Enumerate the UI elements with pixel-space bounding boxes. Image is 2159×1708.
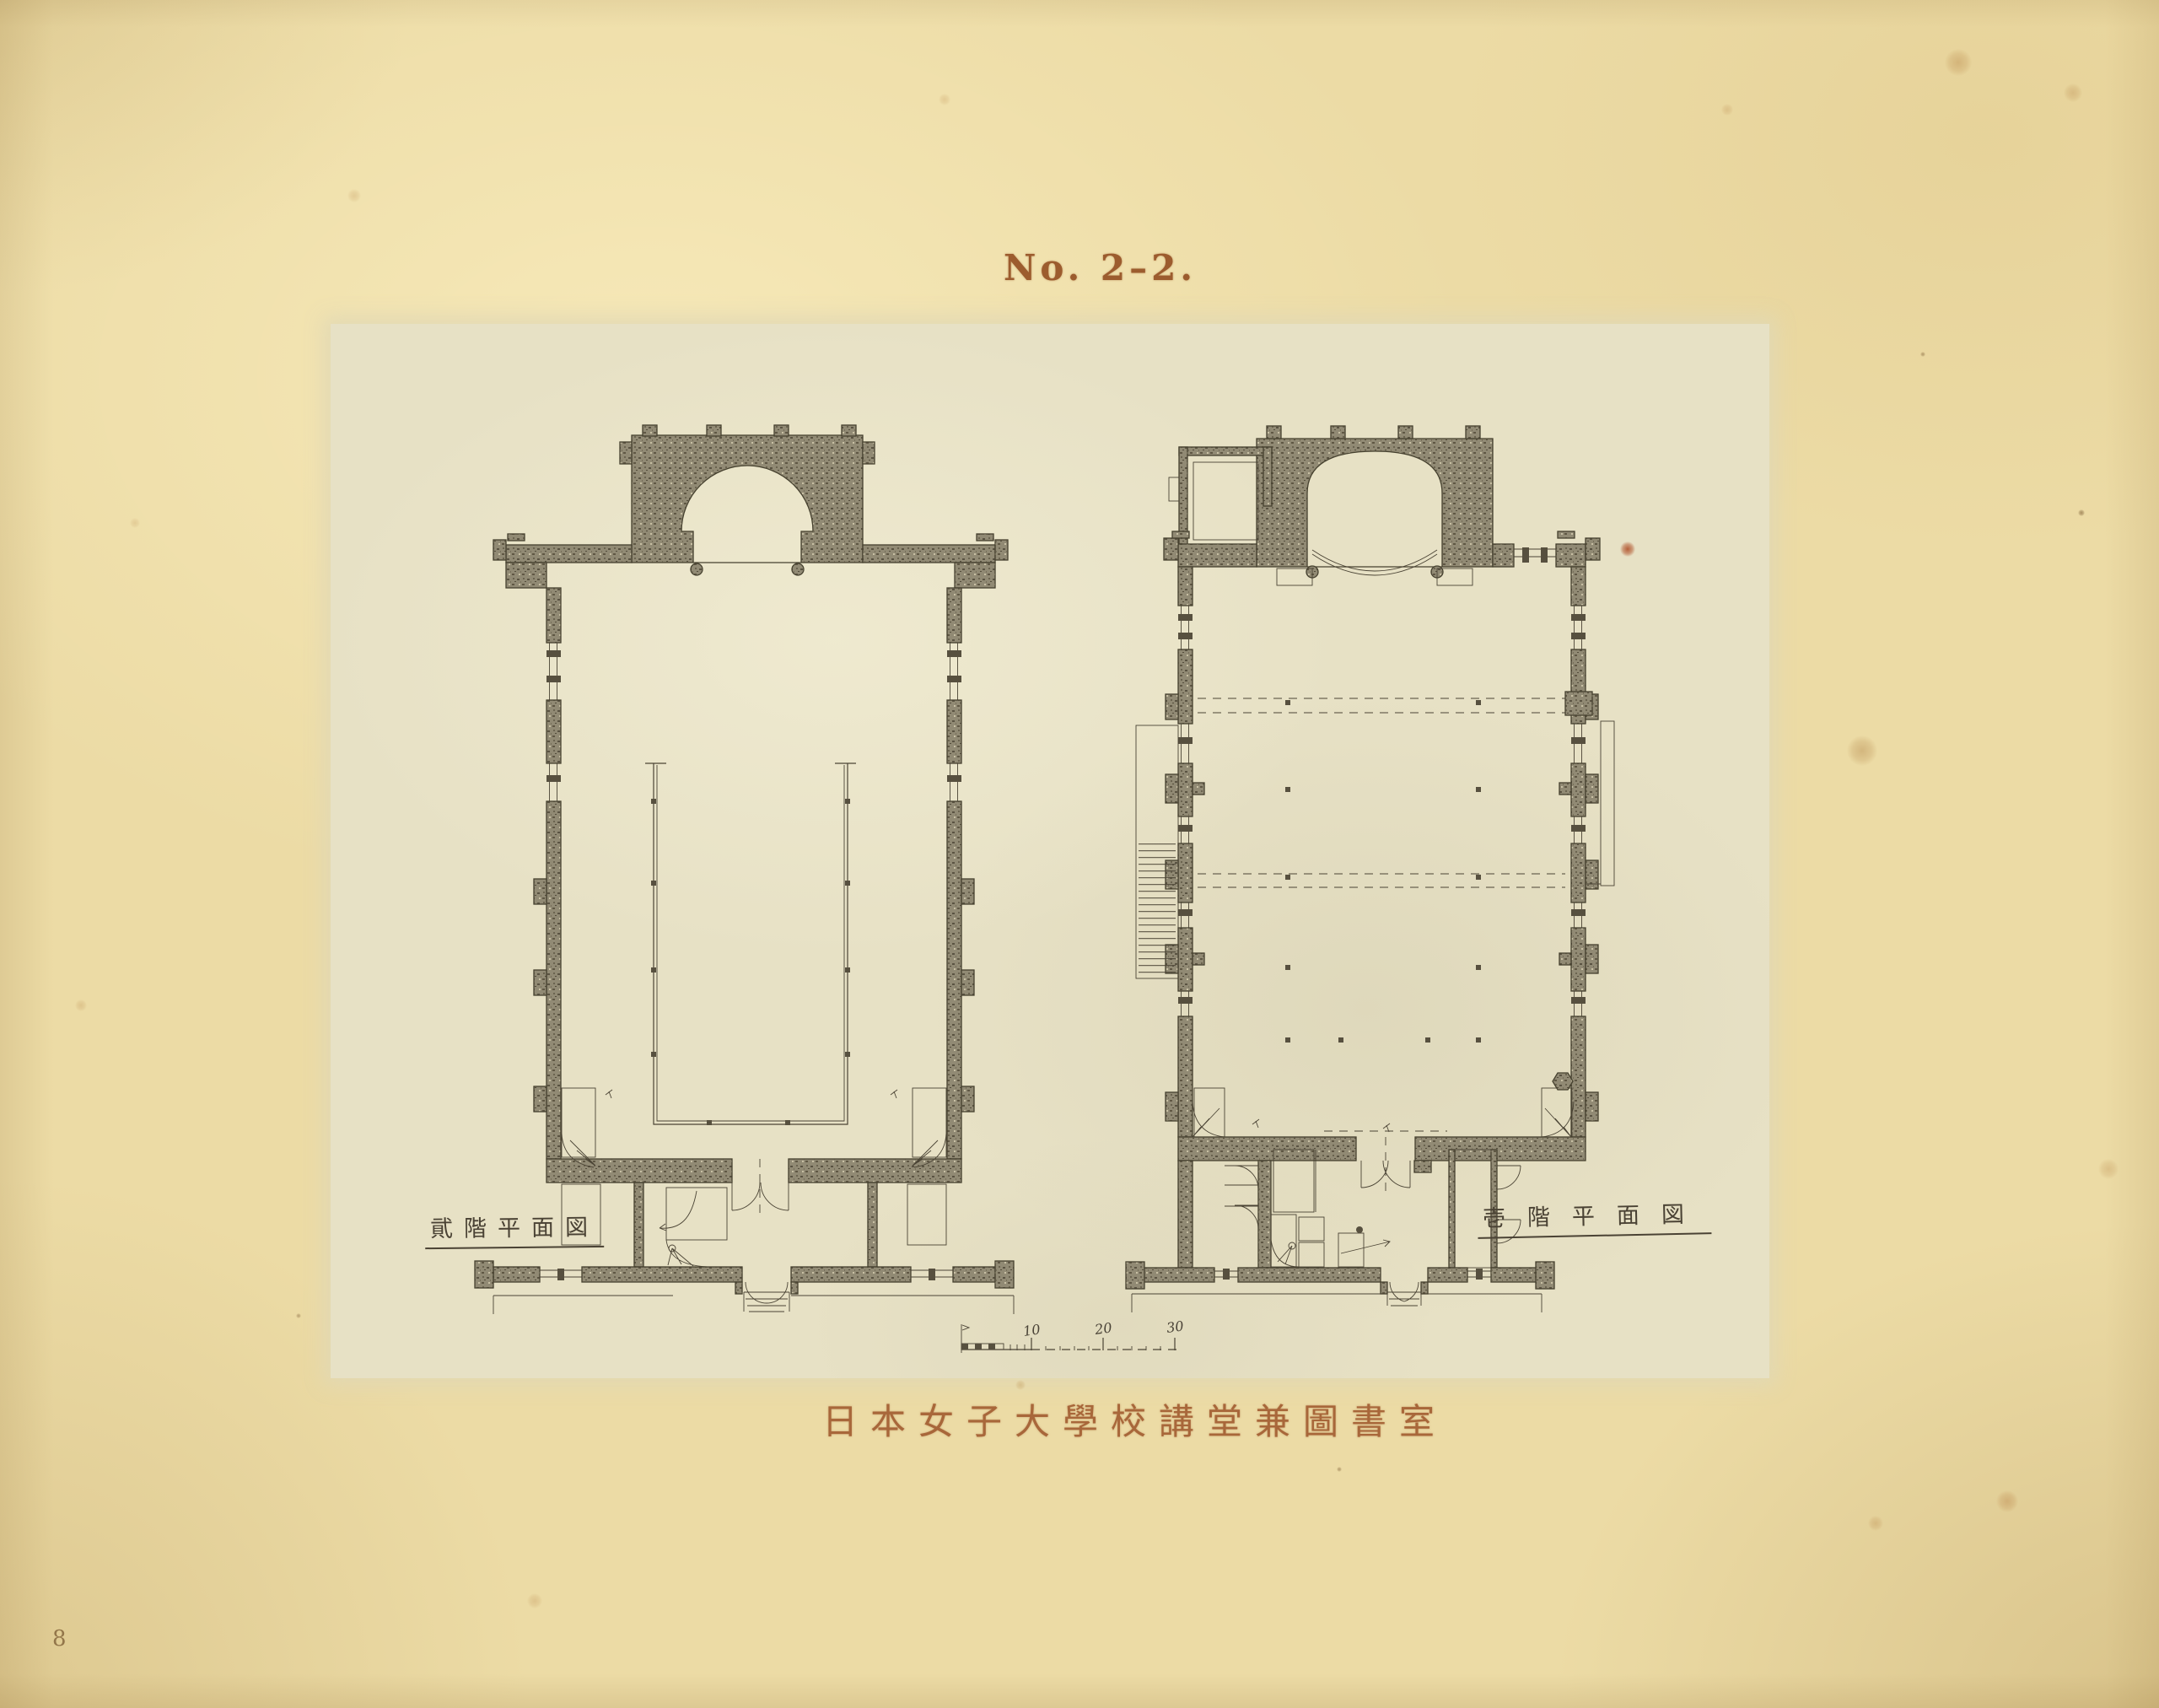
first-floor-plan: [1126, 426, 1614, 1312]
scale-tick-20: 20: [1093, 1319, 1113, 1338]
label-first-floor-plan: 壱階平面図: [1478, 1195, 1712, 1239]
foxing-spot: [75, 999, 87, 1011]
foxing-spot: [2064, 84, 2082, 102]
foxing-spot: [1015, 1380, 1026, 1390]
stage-apse: [632, 435, 863, 563]
vestibule-stair: [660, 1188, 727, 1267]
entry-stairs: [1271, 1215, 1390, 1267]
foxing-spot: [130, 518, 140, 528]
foxing-spot: [939, 94, 950, 105]
stage-apse: [1257, 439, 1493, 567]
entrance-steps: [735, 1282, 798, 1312]
foxing-spot: [296, 1313, 301, 1318]
foxing-spot: [1996, 1490, 2018, 1512]
foxing-spot: [1721, 104, 1733, 116]
foxing-spot: [347, 189, 361, 202]
scale-bar: 10 20 30: [961, 1317, 1185, 1353]
entrance-steps: [1381, 1282, 1428, 1306]
scale-tick-10: 10: [1022, 1321, 1042, 1339]
foxing-spot: [527, 1593, 542, 1608]
scale-tick-30: 30: [1166, 1317, 1185, 1336]
cloak-wc-left: [1178, 1150, 1316, 1268]
foxing-spot: [1847, 735, 1877, 766]
side-stair-treads: [1139, 843, 1176, 975]
foxing-spot: [1920, 352, 1925, 357]
column-grid: [1198, 692, 1592, 1043]
balcony-edge: [645, 763, 856, 1125]
foxing-spot: [1945, 49, 1972, 76]
caption-title: 日本女子大學校講堂兼圖書室: [822, 1393, 1463, 1445]
page-number: 8: [52, 1626, 67, 1651]
foxing-spot: [2078, 509, 2085, 516]
stage-front-curve: [1312, 550, 1437, 575]
second-floor-plan: [475, 425, 1014, 1314]
right-wall: [1559, 567, 1598, 1137]
left-corner-stair: [1193, 1088, 1259, 1137]
right-corner-stair: [1383, 1073, 1574, 1137]
foxing-spot: [1337, 1467, 1342, 1472]
foxing-spot: [2098, 1159, 2119, 1179]
plate-number: No. 2–2.: [1004, 247, 1206, 288]
label-second-floor-plan: 貮階平面図: [425, 1209, 604, 1249]
foxing-spot: [1868, 1516, 1883, 1531]
